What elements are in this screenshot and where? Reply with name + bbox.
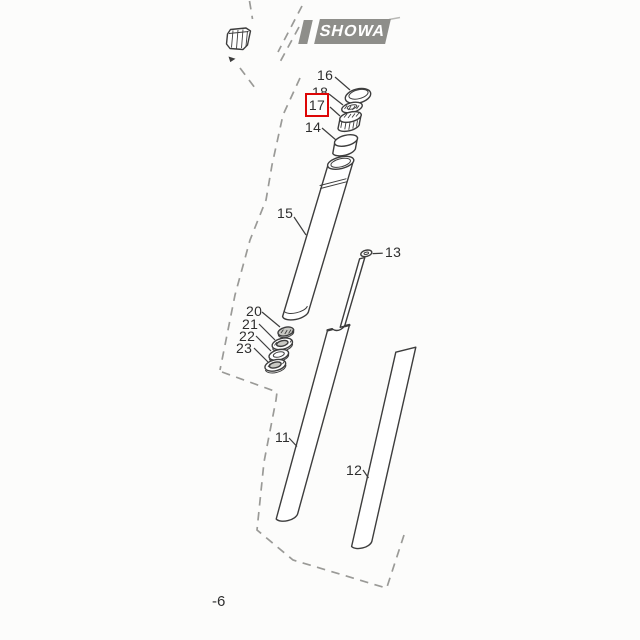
part-label-15[interactable]: 15 (277, 206, 293, 220)
part-14-drawing (333, 133, 359, 156)
brand-name: SHOWA (318, 23, 388, 41)
part-17-drawing (338, 110, 362, 132)
pointer-fragment (229, 57, 236, 63)
part-label-17[interactable]: 17 (309, 98, 325, 112)
part-label-14[interactable]: 14 (305, 120, 321, 134)
fork-exploded-diagram: SHOWA 16 18 17 14 15 13 20 21 22 23 11 1… (0, 0, 640, 640)
part-label-13[interactable]: 13 (385, 245, 401, 259)
part-23-drawing (264, 357, 287, 373)
region-ref-label: -6 (212, 593, 225, 610)
showa-badge: SHOWA (314, 19, 391, 44)
part-15-drawing (283, 154, 356, 320)
part-13-drawing (360, 249, 372, 258)
part-label-11[interactable]: 11 (275, 430, 290, 444)
part-label-23[interactable]: 23 (236, 341, 252, 355)
highlight-box-part-17[interactable]: 17 (305, 93, 329, 117)
part-label-12[interactable]: 12 (346, 463, 362, 477)
part-12-drawing (352, 347, 416, 548)
adjacent-assembly-fragment (227, 28, 251, 62)
part-label-16[interactable]: 16 (317, 68, 333, 82)
damper-rod-drawing (340, 258, 365, 328)
